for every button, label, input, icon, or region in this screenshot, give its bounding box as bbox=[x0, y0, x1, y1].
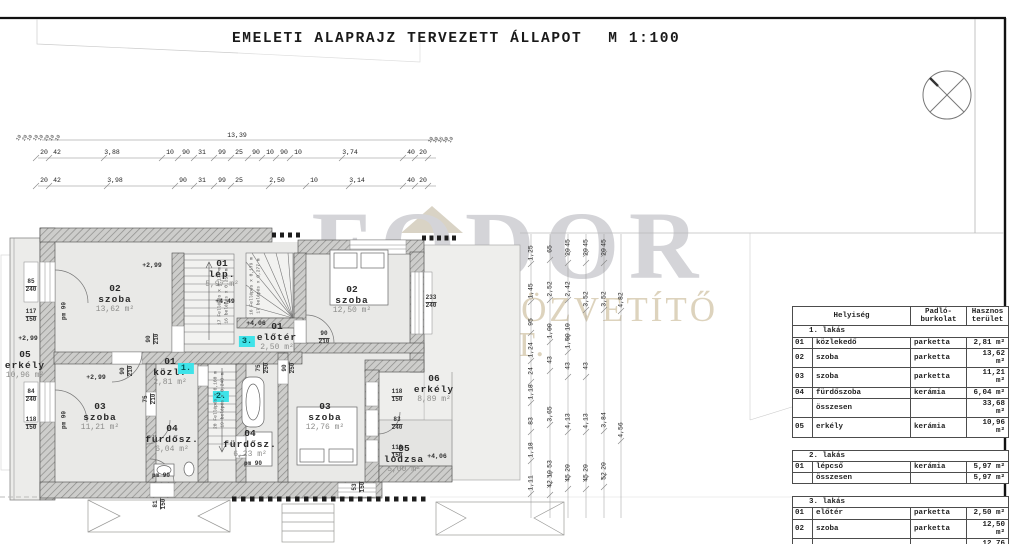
table-row: 02szobaparketta13,62 m² bbox=[793, 348, 1009, 367]
row-number: 01 bbox=[793, 508, 813, 519]
row-number: 03 bbox=[793, 539, 813, 544]
row-number: 02 bbox=[793, 348, 813, 367]
row-number: 02 bbox=[793, 519, 813, 538]
table-row: 01előtérparketta2,50 m² bbox=[793, 508, 1009, 519]
floor-finish-cell: parketta bbox=[911, 368, 967, 387]
row-number: 01 bbox=[793, 337, 813, 348]
floor-finish-cell bbox=[911, 473, 967, 484]
table-row: 01közlekedőparketta2,81 m² bbox=[793, 337, 1009, 348]
row-number bbox=[793, 398, 813, 417]
room-table-2: 2. lakás01lépcsőkerámia5,97 m²összesen5,… bbox=[792, 450, 1009, 485]
floor-finish-cell: kerámia bbox=[911, 387, 967, 398]
stair-winder bbox=[246, 253, 293, 318]
area-cell: 2,50 m² bbox=[967, 508, 1009, 519]
section-title: 2. lakás bbox=[793, 450, 1009, 461]
room-name-cell: szoba bbox=[813, 519, 911, 538]
area-cell: 11,21 m² bbox=[967, 368, 1009, 387]
row-number: 01 bbox=[793, 461, 813, 472]
room-name-cell: közlekedő bbox=[813, 337, 911, 348]
room-name-cell: szoba bbox=[813, 368, 911, 387]
row-number: 04 bbox=[793, 387, 813, 398]
north-symbol-icon bbox=[923, 71, 971, 119]
stair-lower bbox=[208, 364, 236, 460]
floorplan-sheet: FODOR INGATLANKÖZVETÍTŐ KFT. bbox=[0, 0, 1024, 544]
floor-finish-cell: kerámia bbox=[911, 461, 967, 472]
area-cell: 13,62 m² bbox=[967, 348, 1009, 367]
drawing-title: EMELETI ALAPRAJZ TERVEZETT ÁLLAPOTM 1:10… bbox=[232, 31, 680, 47]
row-number: 05 bbox=[793, 418, 813, 437]
area-cell: 33,68 m² bbox=[967, 398, 1009, 417]
area-cell: 12,76 m² bbox=[967, 539, 1009, 544]
area-cell: 2,81 m² bbox=[967, 337, 1009, 348]
floor-finish-cell: parketta bbox=[911, 348, 967, 367]
column-header: Padló- burkolat bbox=[911, 307, 967, 326]
area-cell: 5,97 m² bbox=[967, 473, 1009, 484]
floor-finish-cell: parketta bbox=[911, 508, 967, 519]
table-row: 04fürdőszobakerámia6,04 m² bbox=[793, 387, 1009, 398]
room-schedule: HelyiségPadló- burkolatHasznos terület1.… bbox=[792, 306, 1010, 544]
area-cell: 12,50 m² bbox=[967, 519, 1009, 538]
room-name-cell: összesen bbox=[813, 473, 911, 484]
roof-outlines bbox=[88, 497, 880, 542]
section-title-row: 2. lakás bbox=[793, 450, 1009, 461]
section-title: 1. lakás bbox=[793, 326, 1009, 337]
floor-finish-cell: parketta bbox=[911, 539, 967, 544]
column-header: Helyiség bbox=[793, 307, 911, 326]
floor-finish-cell: kerámia bbox=[911, 418, 967, 437]
table-row: 05erkélykerámia10,96 m² bbox=[793, 418, 1009, 437]
room-name-cell: lépcső bbox=[813, 461, 911, 472]
room-name-cell: erkély bbox=[813, 418, 911, 437]
section-title: 3. lakás bbox=[793, 497, 1009, 508]
table-row: 01lépcsőkerámia5,97 m² bbox=[793, 461, 1009, 472]
table-row: összesen5,97 m² bbox=[793, 473, 1009, 484]
row-number bbox=[793, 473, 813, 484]
row-number: 03 bbox=[793, 368, 813, 387]
room-name-cell: fürdőszoba bbox=[813, 387, 911, 398]
room-name-cell: előtér bbox=[813, 508, 911, 519]
shower bbox=[246, 432, 272, 466]
room-name-cell: szoba bbox=[813, 539, 911, 544]
title-text: EMELETI ALAPRAJZ TERVEZETT ÁLLAPOT bbox=[232, 31, 582, 47]
table-row: 03szobaparketta11,21 m² bbox=[793, 368, 1009, 387]
floor-finish-cell: parketta bbox=[911, 337, 967, 348]
area-cell: 6,04 m² bbox=[967, 387, 1009, 398]
table-row: 02szobaparketta12,50 m² bbox=[793, 519, 1009, 538]
room-table-1: HelyiségPadló- burkolatHasznos terület1.… bbox=[792, 306, 1009, 438]
area-cell: 10,96 m² bbox=[967, 418, 1009, 437]
toilet bbox=[184, 462, 194, 476]
table-row: összesen33,68 m² bbox=[793, 398, 1009, 417]
area-cell: 5,97 m² bbox=[967, 461, 1009, 472]
room-name-cell: szoba bbox=[813, 348, 911, 367]
room-table-3: 3. lakás01előtérparketta2,50 m²02szobapa… bbox=[792, 496, 1009, 544]
table-row: 03szobaparketta12,76 m² bbox=[793, 539, 1009, 544]
title-scale: M 1:100 bbox=[608, 31, 680, 47]
table-header-row: HelyiségPadló- burkolatHasznos terület bbox=[793, 307, 1009, 326]
room-name-cell: összesen bbox=[813, 398, 911, 417]
stair-upper bbox=[184, 254, 234, 344]
section-title-row: 1. lakás bbox=[793, 326, 1009, 337]
section-title-row: 3. lakás bbox=[793, 497, 1009, 508]
floor-finish-cell bbox=[911, 398, 967, 417]
column-header: Hasznos terület bbox=[967, 307, 1009, 326]
floor-finish-cell: parketta bbox=[911, 519, 967, 538]
